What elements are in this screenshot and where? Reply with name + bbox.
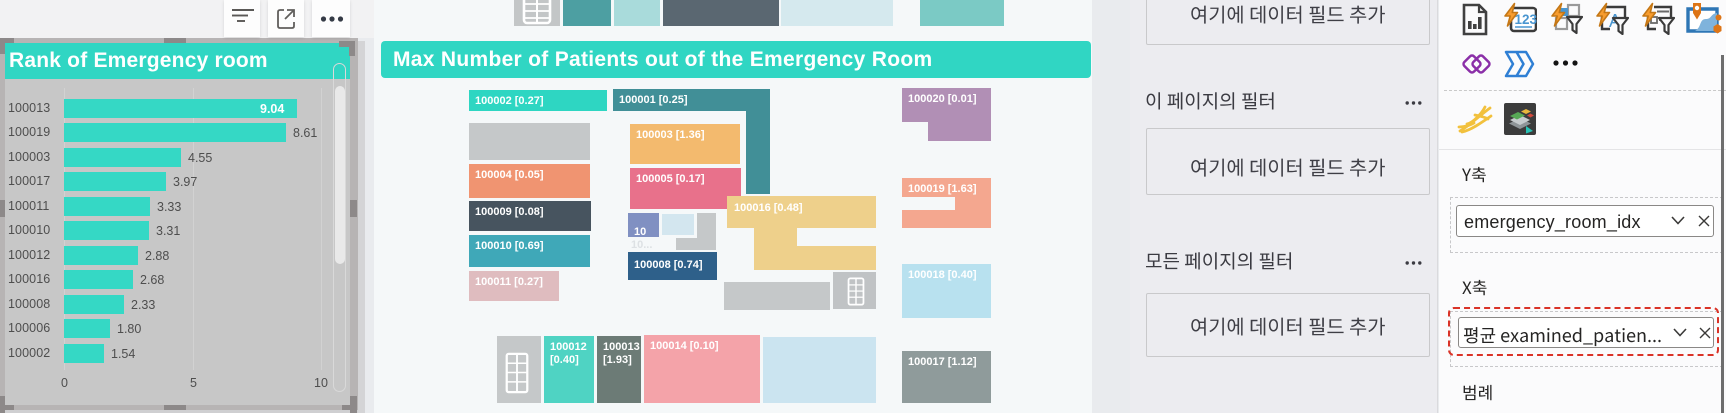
svg-text:123: 123 — [1515, 12, 1538, 27]
